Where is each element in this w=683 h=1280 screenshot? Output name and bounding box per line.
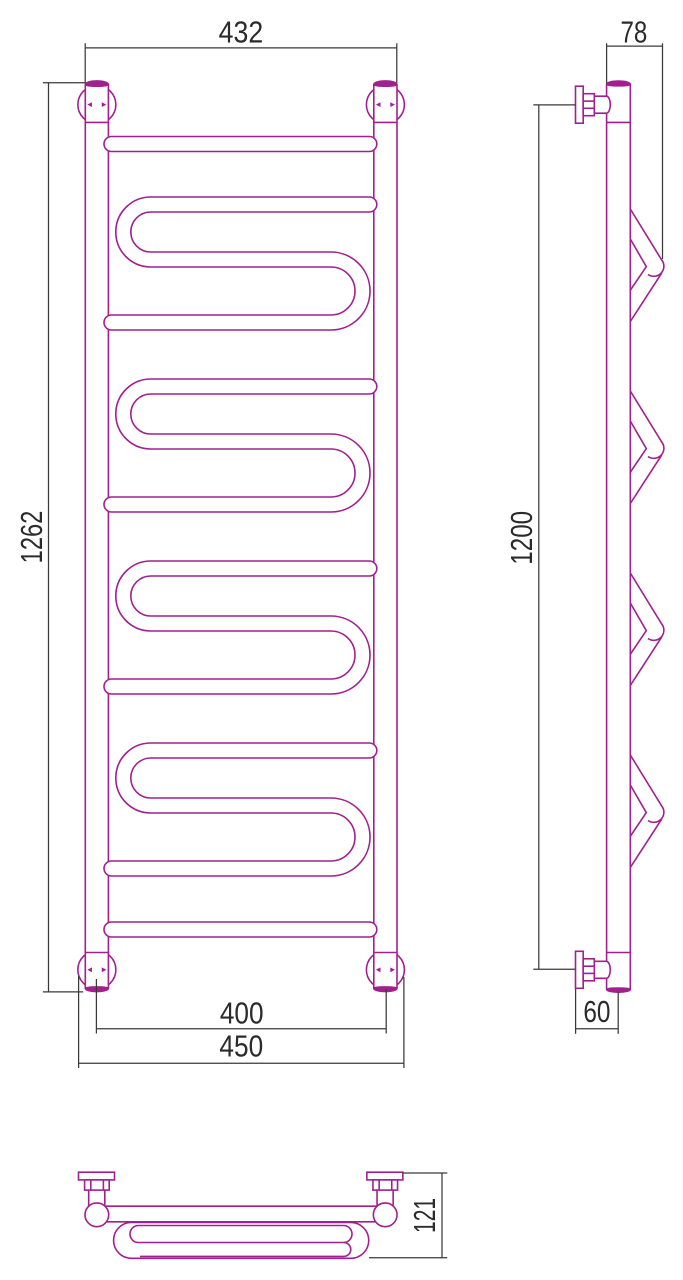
svg-text:432: 432 bbox=[219, 16, 264, 50]
svg-text:60: 60 bbox=[583, 994, 610, 1028]
svg-text:121: 121 bbox=[407, 1198, 442, 1233]
svg-text:78: 78 bbox=[621, 15, 648, 49]
svg-text:1200: 1200 bbox=[504, 511, 538, 565]
svg-text:1262: 1262 bbox=[14, 511, 49, 564]
svg-text:400: 400 bbox=[220, 996, 264, 1030]
svg-text:450: 450 bbox=[219, 1030, 263, 1064]
